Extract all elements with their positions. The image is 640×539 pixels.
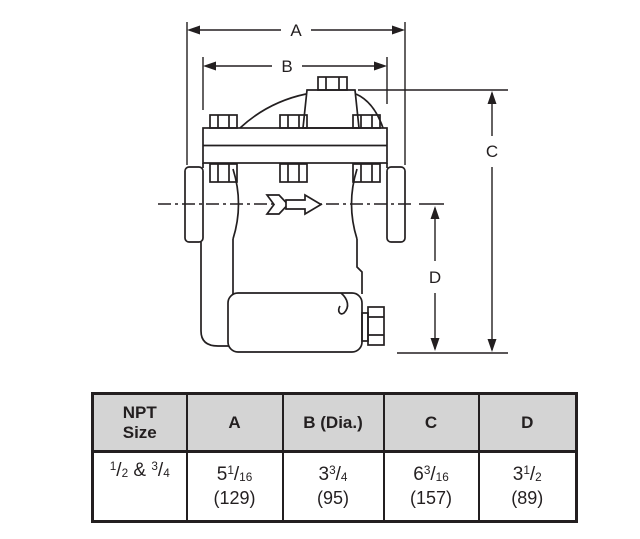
steam-trap-dimension-sheet: A B C D NPT [0, 0, 640, 539]
cell-dimension-d: 31/2 (89) [479, 452, 577, 522]
metric-value: (95) [284, 488, 383, 509]
dimension-value: 51/16 [188, 464, 282, 487]
col-header-d: D [479, 394, 577, 452]
whole-number: 5 [217, 464, 228, 485]
cell-dimension-c: 63/16 (157) [384, 452, 479, 522]
col-header-a: A [187, 394, 283, 452]
whole-number: 3 [513, 464, 524, 485]
fraction-denominator: 4 [163, 467, 170, 480]
dimension-c: C [358, 90, 508, 353]
dimension-b: B [203, 57, 387, 110]
dimension-a: A [187, 21, 405, 165]
cell-dimension-b: 33/4 (95) [283, 452, 384, 522]
steam-trap-drawing: A B C D [0, 0, 640, 380]
dimension-d-label: D [429, 268, 441, 287]
col-header-b: B (Dia.) [283, 394, 384, 452]
metric-value: (129) [188, 488, 282, 509]
whole-number: 3 [319, 464, 330, 485]
whole-number: 6 [413, 464, 424, 485]
col-header-c: C [384, 394, 479, 452]
dimension-value: 63/16 [385, 464, 478, 487]
metric-value: (157) [385, 488, 478, 509]
flow-direction-arrow-icon [267, 195, 321, 214]
table-header-row: NPT Size A B (Dia.) C D [93, 394, 577, 452]
cell-dimension-a: 51/16 (129) [187, 452, 283, 522]
dimensions-table: NPT Size A B (Dia.) C D 1/2 & 3/4 51/16 … [91, 392, 578, 523]
dimension-value: 31/2 [480, 464, 576, 487]
cell-npt-size: 1/2 & 3/4 [93, 452, 187, 522]
col-header-npt-size: NPT Size [93, 394, 187, 452]
metric-value: (89) [480, 488, 576, 509]
dimension-d: D [419, 204, 444, 351]
dimension-a-label: A [290, 21, 302, 40]
fraction-denominator: 16 [436, 471, 449, 484]
table-row: 1/2 & 3/4 51/16 (129) 33/4 (95) 63/16 (1… [93, 452, 577, 522]
fraction-denominator: 2 [535, 471, 542, 484]
dimension-value: 33/4 [284, 464, 383, 487]
fraction-denominator: 4 [341, 471, 348, 484]
fraction-denominator: 16 [239, 471, 252, 484]
joiner-text: & [128, 460, 151, 481]
dimension-c-label: C [486, 142, 498, 161]
valve-body [185, 77, 405, 352]
dimension-b-label: B [281, 57, 292, 76]
